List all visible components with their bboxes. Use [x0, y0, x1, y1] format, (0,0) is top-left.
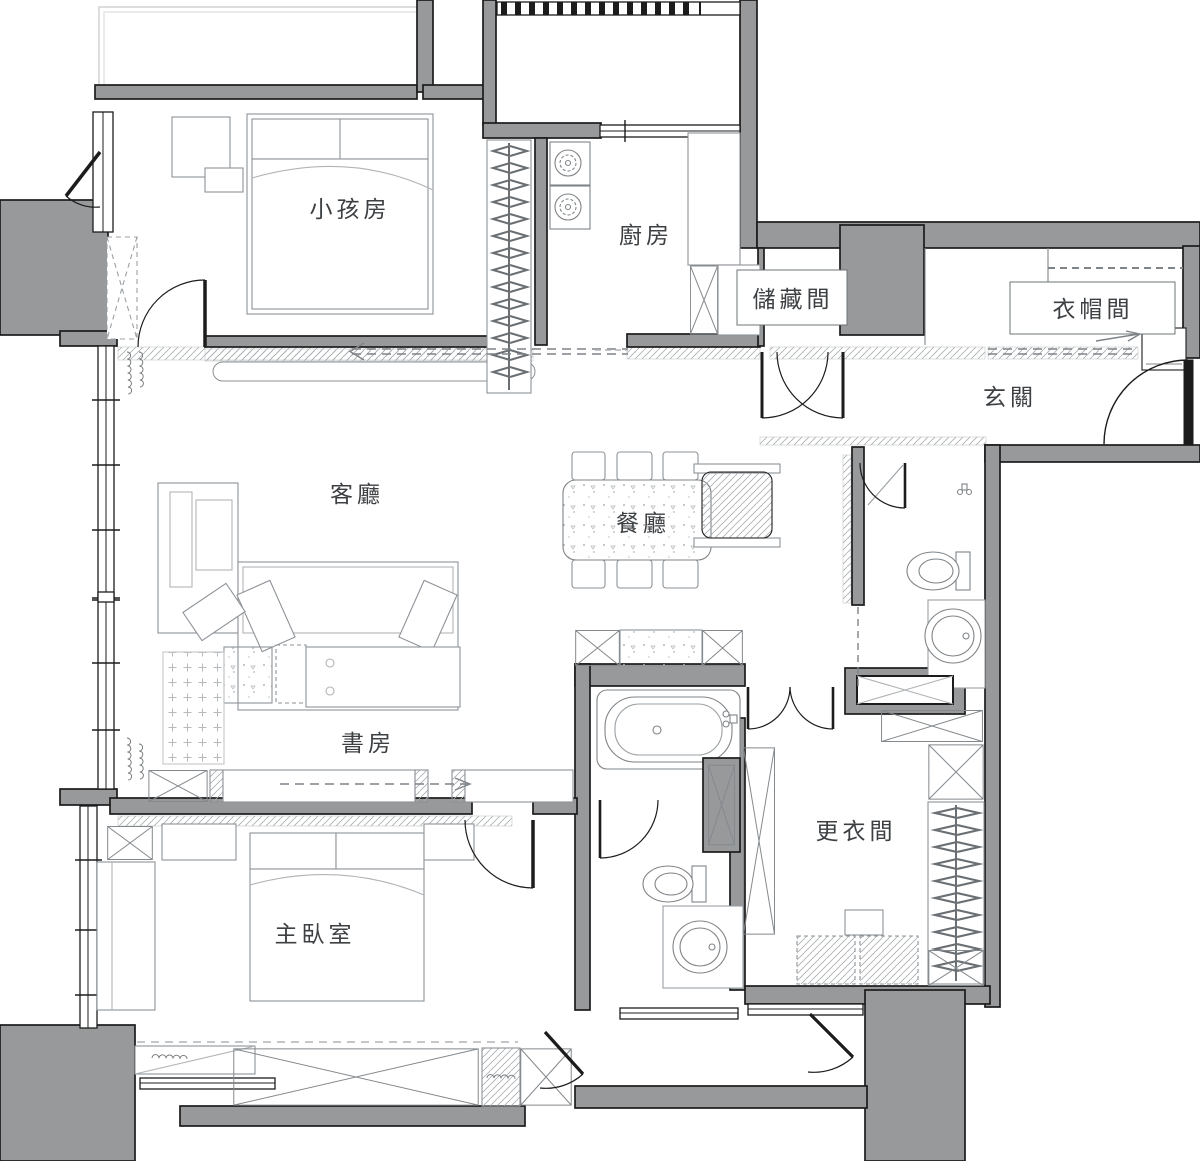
label-master-bedroom: 主臥室: [275, 921, 356, 947]
ac-units: [550, 142, 590, 229]
kids-window: [93, 112, 113, 232]
kids-shelf: [205, 168, 243, 192]
bath-wc-door: [600, 800, 658, 858]
label-cloakroom: 衣帽間: [1053, 296, 1134, 322]
entrance-door: [1104, 360, 1193, 444]
kids-closet-dashed: [107, 237, 137, 339]
kitchen-xbox: [690, 266, 717, 334]
study-storage-band: [149, 770, 573, 802]
kitchen-island: [702, 472, 772, 538]
living-rug: [163, 652, 224, 764]
top-railing: [497, 2, 740, 15]
nightstand-left: [162, 824, 236, 860]
kids-wardrobe: [487, 140, 531, 393]
master-balcony-window: [140, 1078, 275, 1089]
dressing-balcony-door: [808, 1014, 853, 1072]
nightstand-right: [424, 824, 474, 860]
dressing-south-window: [748, 1004, 863, 1015]
label-study: 書房: [341, 730, 395, 756]
kitchen-corridor-door: [777, 352, 843, 418]
master-closet-row: [135, 1046, 571, 1106]
dressing-room-fittings: [743, 710, 984, 985]
label-dining-room: 餐廳: [616, 510, 670, 536]
label-storage: 儲藏間: [753, 286, 834, 312]
dining-set: [563, 452, 780, 588]
bath-partition-column: [703, 758, 740, 852]
guest-vanity: [925, 600, 985, 688]
master-bed: [250, 833, 424, 1001]
master-bedroom-door: [465, 820, 533, 888]
master-vanity: [663, 906, 743, 988]
guest-faucet: [958, 484, 972, 495]
floor-cushion: [276, 645, 306, 703]
label-foyer: 玄關: [983, 384, 1037, 410]
bath-south-window: [620, 1008, 738, 1019]
guest-bathroom: [868, 465, 985, 688]
furniture: [97, 114, 1186, 1106]
balcony-outline: [99, 7, 431, 87]
living-window: [92, 346, 120, 789]
master-wardrobe-left: [97, 862, 155, 1010]
kids-room-door: [138, 280, 205, 347]
floor-plan-svg: 小孩房 廚房 儲藏間 衣帽間 玄關 客廳 餐廳 書房 主臥室 更衣間: [0, 0, 1200, 1161]
storage-door: [762, 352, 828, 418]
label-kitchen: 廚房: [619, 222, 673, 248]
kitchen-tall-cabinet: [688, 133, 740, 265]
coffee-table: [224, 647, 272, 703]
label-living-room: 客廳: [330, 481, 384, 507]
shoe-cabinet: [857, 676, 953, 704]
label-dressing-room: 更衣間: [816, 818, 897, 844]
guest-toilet: [907, 552, 970, 590]
label-kids-room: 小孩房: [310, 196, 391, 222]
master-toilet: [643, 866, 706, 902]
bath-dressing-double-door: [748, 687, 833, 729]
study-desk: [306, 647, 460, 707]
dressing-hanger-rack: [928, 802, 984, 984]
floor-plan-page: 小孩房 廚房 儲藏間 衣帽間 玄關 客廳 餐廳 書房 主臥室 更衣間: [0, 0, 1200, 1161]
dressing-stool: [845, 910, 883, 935]
bedroom-xbox-small: [108, 827, 153, 860]
